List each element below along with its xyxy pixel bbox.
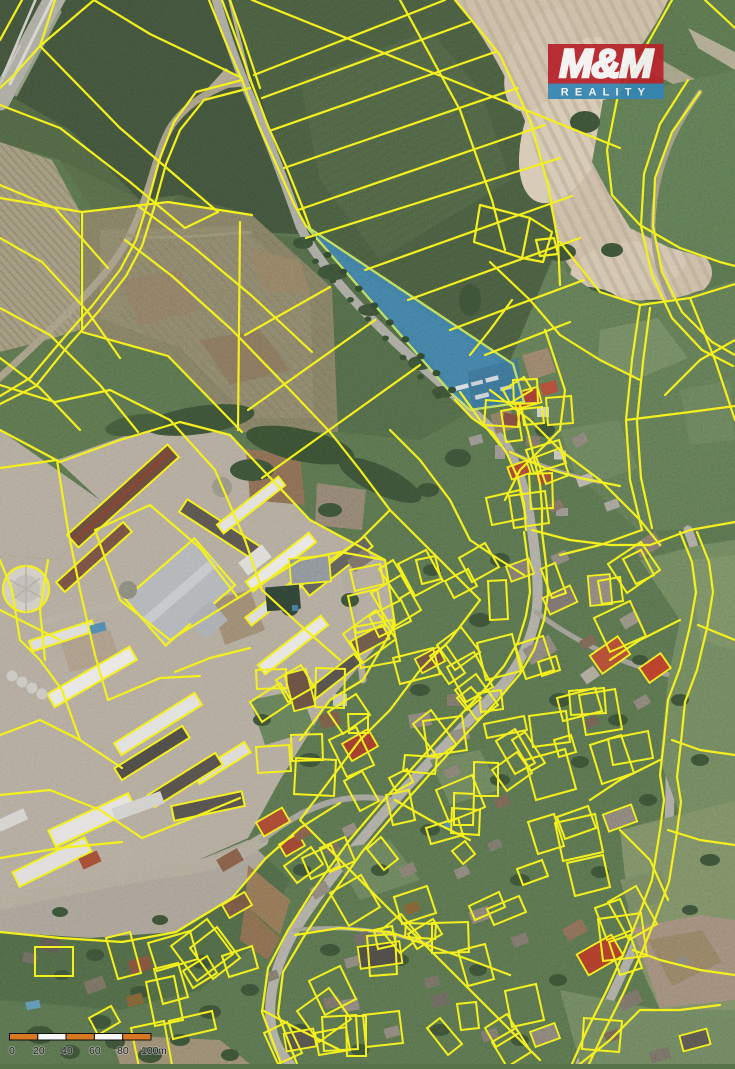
svg-text:m: m bbox=[158, 1045, 167, 1057]
svg-text:80: 80 bbox=[117, 1045, 129, 1057]
svg-text:M&M: M&M bbox=[559, 42, 654, 86]
svg-text:40: 40 bbox=[61, 1045, 73, 1057]
svg-text:60: 60 bbox=[89, 1045, 101, 1057]
svg-text:100: 100 bbox=[141, 1045, 159, 1057]
svg-text:20: 20 bbox=[33, 1045, 45, 1057]
svg-text:0: 0 bbox=[9, 1045, 15, 1057]
svg-text:REALITY: REALITY bbox=[561, 87, 651, 99]
